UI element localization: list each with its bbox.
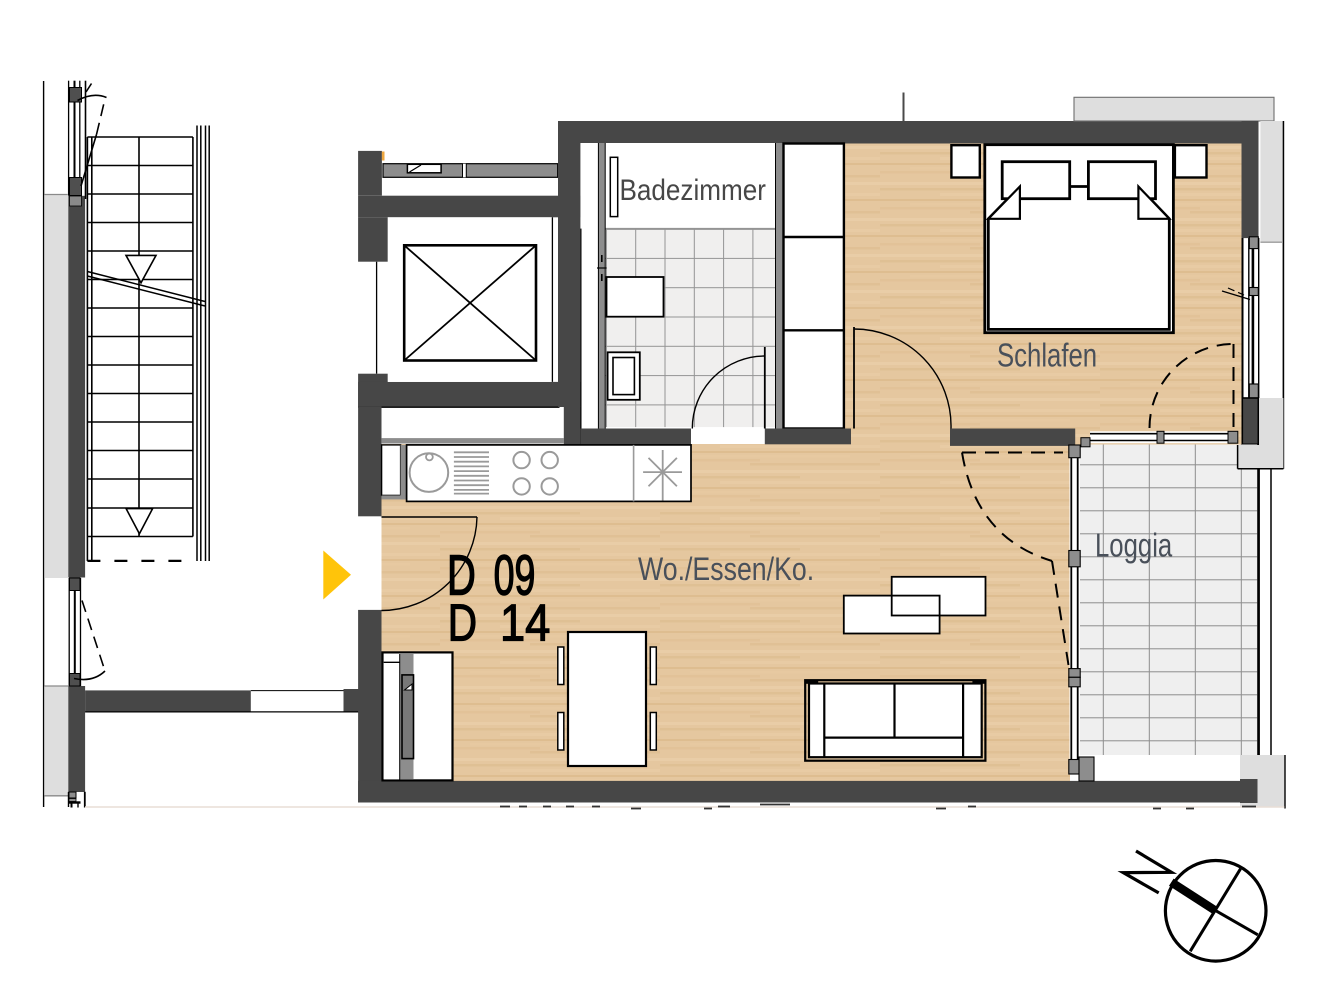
svg-text:14: 14 — [500, 595, 550, 653]
svg-text:Wo./Essen/Ko.: Wo./Essen/Ko. — [638, 552, 814, 588]
svg-text:Schlafen: Schlafen — [997, 338, 1097, 375]
svg-text:Loggia: Loggia — [1095, 528, 1173, 565]
svg-text:Badezimmer: Badezimmer — [620, 173, 766, 206]
svg-text:D: D — [448, 594, 477, 652]
